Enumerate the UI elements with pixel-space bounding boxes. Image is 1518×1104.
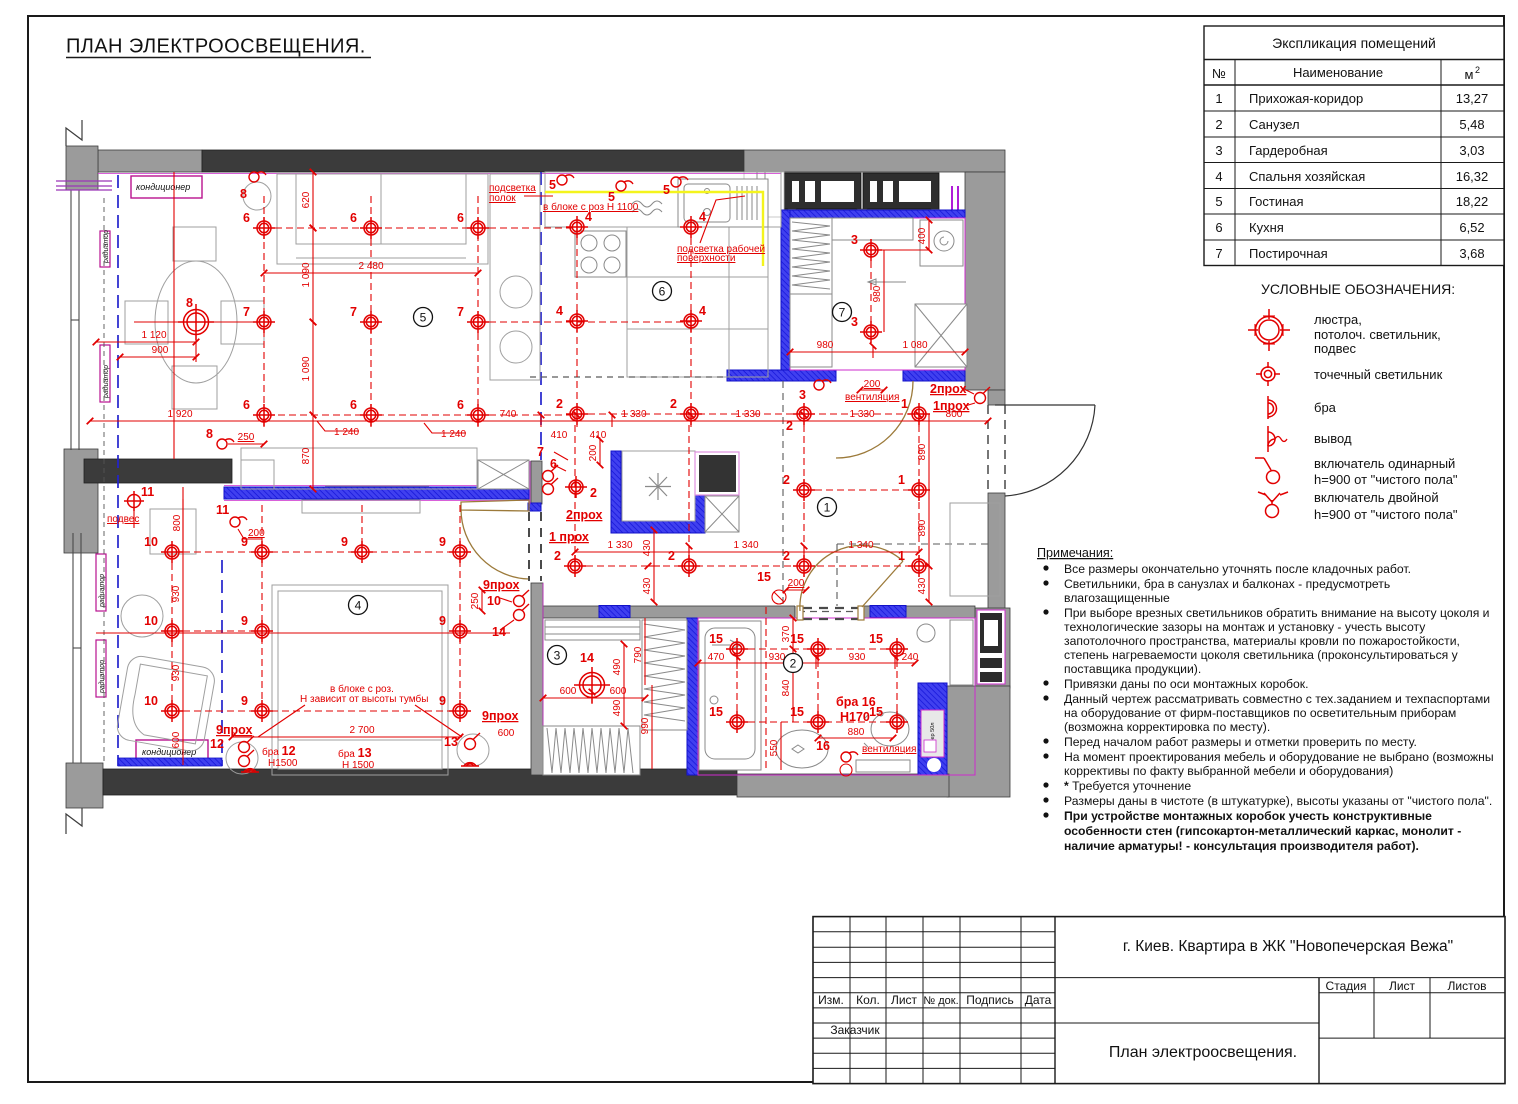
svg-text:6: 6 — [243, 211, 250, 225]
svg-text:4: 4 — [1215, 169, 1222, 184]
svg-text:10: 10 — [144, 614, 158, 628]
svg-text:240: 240 — [902, 652, 919, 663]
svg-text:Листов: Листов — [1448, 979, 1487, 993]
svg-text:План электроосвещения.: План электроосвещения. — [1109, 1044, 1297, 1061]
svg-text:930: 930 — [171, 585, 182, 602]
svg-text:наличие арматуры! - консультац: наличие арматуры! - консультация произво… — [1064, 839, 1419, 853]
svg-text:10: 10 — [487, 594, 501, 608]
svg-text:технологические зазоры на монт: технологические зазоры на монтаж и устан… — [1064, 620, 1426, 634]
svg-text:2: 2 — [1475, 65, 1480, 75]
svg-text:1: 1 — [898, 549, 905, 563]
svg-text:Лист: Лист — [891, 993, 918, 1007]
svg-text:2: 2 — [554, 549, 561, 563]
svg-text:2: 2 — [668, 549, 675, 563]
svg-text:Кол.: Кол. — [856, 993, 880, 1007]
svg-text:1 330: 1 330 — [607, 540, 632, 551]
svg-text:Заказчик: Заказчик — [830, 1023, 880, 1037]
svg-text:1 920: 1 920 — [167, 409, 192, 420]
svg-text:4: 4 — [355, 599, 362, 613]
svg-text:4: 4 — [699, 304, 706, 318]
svg-text:5: 5 — [549, 178, 556, 192]
svg-text:Постирочная: Постирочная — [1249, 246, 1328, 261]
svg-text:200: 200 — [788, 578, 805, 589]
svg-text:5: 5 — [1215, 194, 1222, 209]
svg-text:вентиляция: вентиляция — [862, 744, 916, 755]
svg-text:Наименование: Наименование — [1293, 65, 1383, 80]
svg-text:кондиционер: кондиционер — [142, 747, 196, 757]
svg-text:8: 8 — [206, 427, 213, 441]
svg-text:Стадия: Стадия — [1326, 979, 1367, 993]
svg-text:№ док.: № док. — [923, 995, 958, 1007]
svg-text:Примечания:: Примечания: — [1037, 546, 1113, 560]
svg-text:1 240: 1 240 — [334, 427, 359, 438]
svg-text:9: 9 — [341, 535, 348, 549]
svg-text:поставщика продукции).: поставщика продукции). — [1064, 662, 1201, 676]
svg-text:400: 400 — [917, 227, 928, 244]
svg-text:влагозащищенные: влагозащищенные — [1064, 591, 1170, 605]
svg-text:степень нагреваемости цоколя с: степень нагреваемости цоколя светильника… — [1064, 648, 1459, 662]
svg-text:930: 930 — [171, 664, 182, 681]
svg-text:Привязки даны по оси монтажных: Привязки даны по оси монтажных коробок. — [1064, 677, 1309, 691]
svg-text:2: 2 — [1215, 117, 1222, 132]
svg-text:490: 490 — [612, 658, 623, 675]
svg-text:11: 11 — [216, 503, 229, 517]
svg-text:10: 10 — [144, 694, 158, 708]
svg-text:5: 5 — [663, 183, 670, 197]
svg-text:2: 2 — [786, 419, 793, 433]
svg-text:740: 740 — [500, 409, 517, 420]
svg-text:На момент проектирования мебел: На момент проектирования мебель и оборуд… — [1064, 750, 1494, 764]
svg-text:600: 600 — [171, 731, 182, 748]
svg-text:9: 9 — [241, 614, 248, 628]
svg-text:Н170: Н170 — [840, 710, 870, 724]
svg-text:радиатор: радиатор — [98, 574, 106, 608]
svg-text:м: м — [1465, 67, 1474, 82]
svg-text:1 330: 1 330 — [735, 409, 760, 420]
svg-text:Н1500: Н1500 — [268, 758, 298, 769]
svg-text:При выборе врезных светильнико: При выборе врезных светильников обратить… — [1064, 606, 1490, 620]
svg-text:250: 250 — [238, 432, 255, 443]
svg-text:880: 880 — [848, 727, 865, 738]
svg-text:2: 2 — [790, 657, 797, 671]
svg-text:УСЛОВНЫЕ ОБОЗНАЧЕНИЯ:: УСЛОВНЫЕ ОБОЗНАЧЕНИЯ: — [1261, 281, 1455, 297]
svg-text:потолоч. светильник,: потолоч. светильник, — [1314, 327, 1441, 342]
svg-text:Санузел: Санузел — [1249, 117, 1300, 132]
svg-text:16,32: 16,32 — [1456, 169, 1489, 184]
svg-text:430: 430 — [917, 577, 928, 594]
svg-text:бра 16: бра 16 — [836, 695, 876, 709]
svg-text:840: 840 — [781, 679, 792, 696]
svg-text:3: 3 — [554, 649, 561, 663]
svg-text:6: 6 — [1215, 220, 1222, 235]
svg-text:890: 890 — [917, 519, 928, 536]
svg-text:490: 490 — [612, 699, 623, 716]
svg-text:470: 470 — [708, 652, 725, 663]
svg-text:2: 2 — [556, 397, 563, 411]
svg-text:980: 980 — [872, 285, 883, 302]
svg-text:18,22: 18,22 — [1456, 194, 1489, 209]
svg-text:h=900 от "чистого пола": h=900 от "чистого пола" — [1314, 507, 1458, 522]
svg-text:9: 9 — [439, 535, 446, 549]
svg-text:1 340: 1 340 — [733, 540, 758, 551]
svg-text:15: 15 — [869, 632, 883, 646]
svg-text:вывод: вывод — [1314, 431, 1352, 446]
svg-text:7: 7 — [243, 305, 250, 319]
svg-text:990: 990 — [640, 717, 651, 734]
svg-text:1: 1 — [898, 473, 905, 487]
svg-text:Н 1500: Н 1500 — [342, 760, 375, 771]
svg-text:Размеры даны в чистоте (в штук: Размеры даны в чистоте (в штукатурке), в… — [1064, 794, 1492, 808]
svg-text:15: 15 — [790, 705, 804, 719]
svg-text:на оборудование от фирм-постав: на оборудование от фирм-поставщиков по о… — [1064, 706, 1456, 720]
svg-text:2 700: 2 700 — [349, 725, 374, 736]
svg-text:1: 1 — [1215, 91, 1222, 106]
svg-text:Дата: Дата — [1025, 993, 1052, 1007]
svg-text:4: 4 — [556, 304, 563, 318]
svg-text:9: 9 — [439, 694, 446, 708]
svg-text:620: 620 — [301, 191, 312, 208]
svg-text:5,48: 5,48 — [1459, 117, 1484, 132]
svg-text:7: 7 — [839, 306, 846, 320]
svg-text:9: 9 — [241, 535, 248, 549]
svg-text:1: 1 — [901, 397, 908, 411]
svg-text:6: 6 — [457, 398, 464, 412]
svg-text:Экспликация помещений: Экспликация помещений — [1272, 35, 1436, 51]
svg-text:1 090: 1 090 — [301, 262, 312, 287]
svg-text:вентиляция: вентиляция — [845, 392, 899, 403]
svg-text:890: 890 — [917, 443, 928, 460]
svg-text:15: 15 — [790, 632, 804, 646]
svg-text:точечный светильник: точечный светильник — [1314, 367, 1443, 382]
svg-text:870: 870 — [301, 447, 312, 464]
svg-text:люстра,: люстра, — [1314, 312, 1362, 327]
svg-text:3: 3 — [851, 233, 858, 247]
svg-text:9прох: 9прох — [483, 578, 519, 592]
svg-text:Перед началом работ размеры и: Перед началом работ размеры и отметки пр… — [1064, 735, 1417, 749]
svg-text:1 330: 1 330 — [849, 409, 874, 420]
svg-text:800: 800 — [172, 514, 183, 531]
svg-text:430: 430 — [642, 577, 653, 594]
svg-text:полок: полок — [489, 193, 516, 204]
svg-text:2прох: 2прох — [930, 382, 966, 396]
svg-text:Кухня: Кухня — [1249, 220, 1284, 235]
svg-text:6: 6 — [659, 285, 666, 299]
svg-text:h=900 от "чистого пола": h=900 от "чистого пола" — [1314, 472, 1458, 487]
svg-text:1 120: 1 120 — [141, 330, 166, 341]
svg-text:930: 930 — [849, 652, 866, 663]
svg-text:6: 6 — [457, 211, 464, 225]
svg-text:3: 3 — [1215, 143, 1222, 158]
svg-text:600: 600 — [560, 686, 577, 697]
svg-text:1 330: 1 330 — [621, 409, 646, 420]
svg-text:2прох: 2прох — [566, 508, 602, 522]
svg-text:При устройстве монтажных коро: При устройстве монтажных коробок учесть … — [1064, 809, 1432, 823]
svg-text:980: 980 — [817, 340, 834, 351]
svg-text:2: 2 — [783, 549, 790, 563]
svg-text:Светильники, бра в санузлах и: Светильники, бра в санузлах и балконах -… — [1064, 577, 1390, 591]
svg-text:кондиционер: кондиционер — [136, 182, 190, 192]
svg-text:2: 2 — [670, 397, 677, 411]
svg-text:10: 10 — [144, 535, 158, 549]
svg-text:3: 3 — [799, 388, 806, 402]
svg-text:7: 7 — [350, 305, 357, 319]
svg-text:13,27: 13,27 — [1456, 91, 1489, 106]
svg-text:7: 7 — [457, 305, 464, 319]
svg-text:включатель двойной: включатель двойной — [1314, 490, 1439, 505]
svg-text:9прох: 9прох — [482, 709, 518, 723]
svg-text:200: 200 — [588, 444, 599, 461]
svg-text:бра 13: бра 13 — [338, 746, 372, 760]
svg-text:14: 14 — [580, 651, 594, 665]
svg-text:Подпись: Подпись — [966, 993, 1014, 1007]
svg-text:бра: бра — [1314, 400, 1337, 415]
svg-text:Данный чертеж рассматривать со: Данный чертеж рассматривать совместно с … — [1064, 692, 1490, 706]
svg-text:6: 6 — [350, 398, 357, 412]
svg-text:6,52: 6,52 — [1459, 220, 1484, 235]
svg-text:1 340: 1 340 — [848, 540, 873, 551]
svg-text:ПЛАН ЭЛЕКТРООСВЕЩЕНИЯ.: ПЛАН ЭЛЕКТРООСВЕЩЕНИЯ. — [66, 36, 366, 58]
svg-text:8: 8 — [240, 187, 247, 201]
svg-text:430: 430 — [642, 539, 653, 556]
svg-text:Лист: Лист — [1389, 979, 1416, 993]
svg-text:Гардеробная: Гардеробная — [1249, 143, 1328, 158]
svg-text:1прох: 1прох — [933, 399, 969, 413]
svg-text:200: 200 — [248, 528, 265, 539]
svg-text:радиатор: радиатор — [102, 365, 110, 399]
svg-text:особенности стен (гипсокартон-: особенности стен (гипсокартон-металличес… — [1064, 824, 1461, 838]
svg-text:радиатор: радиатор — [102, 230, 110, 264]
svg-text:№: № — [1212, 66, 1226, 81]
svg-text:Изм.: Изм. — [818, 993, 844, 1007]
svg-text:включатель одинарный: включатель одинарный — [1314, 456, 1455, 471]
svg-text:790: 790 — [633, 646, 644, 663]
svg-text:410: 410 — [590, 430, 607, 441]
svg-text:радиатор: радиатор — [98, 660, 106, 694]
svg-text:11: 11 — [141, 485, 154, 499]
svg-text:8: 8 — [186, 296, 193, 310]
svg-text:5: 5 — [420, 311, 427, 325]
svg-text:6: 6 — [243, 398, 250, 412]
svg-text:1 прох: 1 прох — [549, 530, 589, 544]
svg-text:2: 2 — [783, 473, 790, 487]
svg-text:900: 900 — [152, 345, 169, 356]
svg-text:(возможна корректировка по мес: (возможна корректировка по месту). — [1064, 720, 1270, 734]
svg-text:16: 16 — [816, 739, 830, 753]
svg-text:Спальня хозяйская: Спальня хозяйская — [1249, 169, 1365, 184]
svg-text:Прихожая-коридор: Прихожая-коридор — [1249, 91, 1363, 106]
svg-text:1 240: 1 240 — [441, 429, 466, 440]
svg-text:Гостиная: Гостиная — [1249, 194, 1304, 209]
svg-text:7: 7 — [1215, 246, 1222, 261]
svg-text:Н зависит от высоты тумбы: Н зависит от высоты тумбы — [300, 693, 428, 705]
svg-text:2 480: 2 480 — [358, 261, 383, 272]
svg-text:6: 6 — [350, 211, 357, 225]
svg-text:13: 13 — [444, 735, 458, 749]
svg-text:г. Киев. Квартира в ЖК "Новопе: г. Киев. Квартира в ЖК "Новопечерская Ве… — [1123, 938, 1453, 955]
svg-text:200: 200 — [864, 379, 881, 390]
svg-text:600: 600 — [498, 728, 515, 739]
svg-text:1: 1 — [824, 501, 831, 515]
svg-text:9: 9 — [241, 694, 248, 708]
svg-text:коррективы по факту выбранной: коррективы по факту выбранной мебели и о… — [1064, 764, 1393, 778]
svg-text:410: 410 — [551, 430, 568, 441]
svg-text:15: 15 — [709, 705, 723, 719]
svg-text:подвес: подвес — [1314, 341, 1357, 356]
svg-text:запотолочного пространства, ма: запотолочного пространства, материалы кр… — [1064, 634, 1460, 648]
svg-text:550: 550 — [769, 739, 780, 756]
svg-text:1 090: 1 090 — [301, 356, 312, 381]
svg-text:бра 12: бра 12 — [262, 744, 296, 758]
svg-text:поверхности: поверхности — [677, 253, 735, 264]
svg-text:в блоке с роз Н 1100: в блоке с роз Н 1100 — [543, 201, 639, 213]
svg-text:Все размеры окончательно уточн: Все размеры окончательно уточнять после … — [1064, 562, 1411, 576]
svg-text:1 080: 1 080 — [902, 340, 927, 351]
svg-text:9: 9 — [439, 614, 446, 628]
svg-text:3,03: 3,03 — [1459, 143, 1484, 158]
svg-text:370: 370 — [781, 625, 792, 642]
svg-text:7: 7 — [537, 445, 544, 459]
svg-text:3,68: 3,68 — [1459, 246, 1484, 261]
svg-text:12: 12 — [210, 737, 224, 751]
svg-text:* Требуется уточнение: * Требуется уточнение — [1064, 779, 1191, 793]
svg-text:9прох: 9прох — [216, 723, 252, 737]
svg-text:3: 3 — [851, 315, 858, 329]
svg-text:15: 15 — [757, 570, 771, 584]
svg-text:250: 250 — [470, 592, 481, 609]
svg-text:4: 4 — [699, 210, 706, 224]
svg-text:2: 2 — [590, 486, 597, 500]
svg-text:15: 15 — [709, 632, 723, 646]
